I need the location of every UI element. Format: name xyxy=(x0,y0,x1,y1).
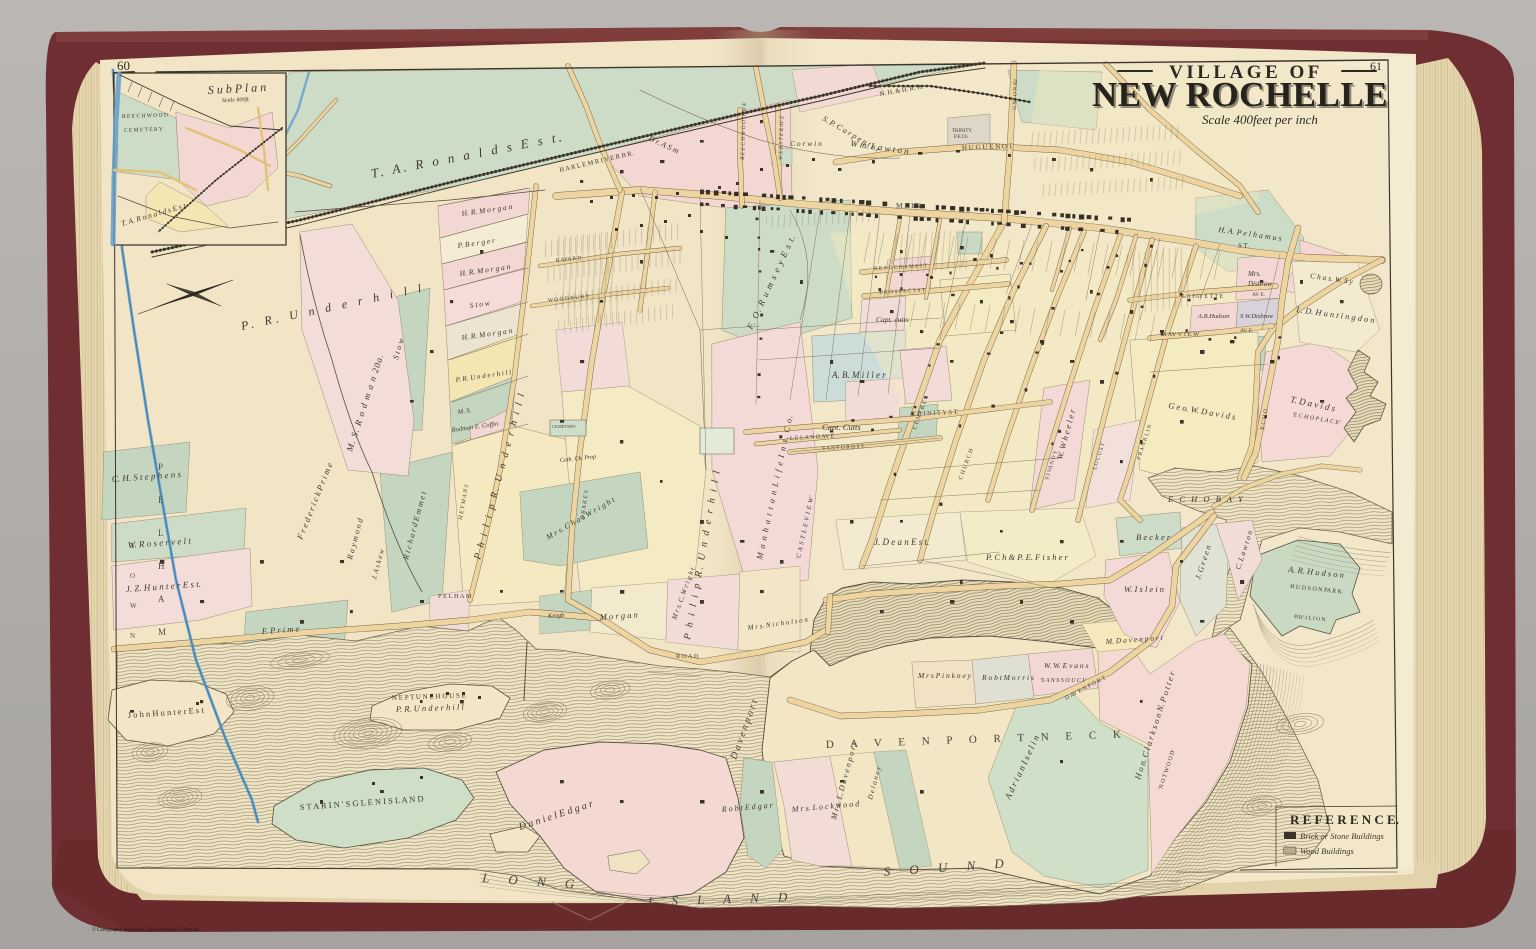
svg-text:C o r w i n: C o r w i n xyxy=(790,139,822,148)
svg-text:AV E.: AV E. xyxy=(1252,292,1266,298)
svg-text:S.W.Disbrow: S.W.Disbrow xyxy=(1240,313,1274,320)
svg-text:M r s P i n k n e y: M r s P i n k n e y xyxy=(917,671,972,680)
svg-text:A.B.Hudson: A.B.Hudson xyxy=(1197,313,1229,320)
svg-text:Capt. Cutts: Capt. Cutts xyxy=(822,422,861,432)
svg-text:W. W. E v a n s: W. W. E v a n s xyxy=(1044,661,1089,670)
svg-text:M A I N: M A I N xyxy=(896,201,921,210)
svg-text:NEW ROCHELLE: NEW ROCHELLE xyxy=(1092,75,1388,114)
svg-text:Wood Buildings: Wood Buildings xyxy=(1300,846,1354,856)
svg-text:J. D e a n E s t.: J. D e a n E s t. xyxy=(874,537,929,547)
svg-text:P.E.Ch: P.E.Ch xyxy=(954,135,968,140)
svg-text:Scale 800ft.: Scale 800ft. xyxy=(222,96,251,104)
svg-text:Brick or Stone Buildings: Brick or Stone Buildings xyxy=(1300,831,1385,841)
svg-text:B e c k e r: B e c k e r xyxy=(1136,532,1171,542)
svg-text:W. I s l e i n: W. I s l e i n xyxy=(1124,584,1164,594)
svg-text:R E F E R E N C E.: R E F E R E N C E. xyxy=(1290,812,1399,827)
svg-text:CEMETERY: CEMETERY xyxy=(552,424,577,429)
svg-text:E C H O B A Y: E C H O B A Y xyxy=(1167,494,1245,504)
svg-text:Mrs.: Mrs. xyxy=(1247,270,1261,278)
svg-text:L A FAY E T T E: L A FAY E T T E xyxy=(1182,294,1223,300)
svg-text:Scale 400feet per inch: Scale 400feet per inch xyxy=(1202,112,1318,127)
svg-text:© Cartography Associates, Davi: © Cartography Associates, David Rumsey C… xyxy=(92,927,199,933)
svg-text:U N I O N AV: U N I O N AV xyxy=(1012,78,1019,110)
svg-text:R O A D: R O A D xyxy=(676,653,699,660)
svg-text:A. B. M i l l e r: A. B. M i l l e r xyxy=(831,370,886,380)
svg-text:Krogh: Krogh xyxy=(547,612,565,620)
svg-text:P E L H A M: P E L H A M xyxy=(438,593,472,600)
svg-text:P. C h & P. E. F i s h e r: P. C h & P. E. F i s h e r xyxy=(985,552,1069,562)
svg-text:60: 60 xyxy=(117,58,130,73)
svg-text:'S A N S S O U C I': 'S A N S S O U C I' xyxy=(1040,678,1086,684)
svg-text:TRINITY: TRINITY xyxy=(952,129,972,134)
svg-text:R o b t M o r r i s: R o b t M o r r i s xyxy=(981,673,1034,682)
svg-text:S T.: S T. xyxy=(1238,242,1249,250)
svg-text:AV E.: AV E. xyxy=(1240,328,1254,334)
svg-text:Disbrow: Disbrow xyxy=(1247,280,1272,288)
svg-text:B AY V I E W: B AY V I E W xyxy=(1162,331,1200,338)
svg-text:Capt. cutts: Capt. cutts xyxy=(876,315,909,324)
